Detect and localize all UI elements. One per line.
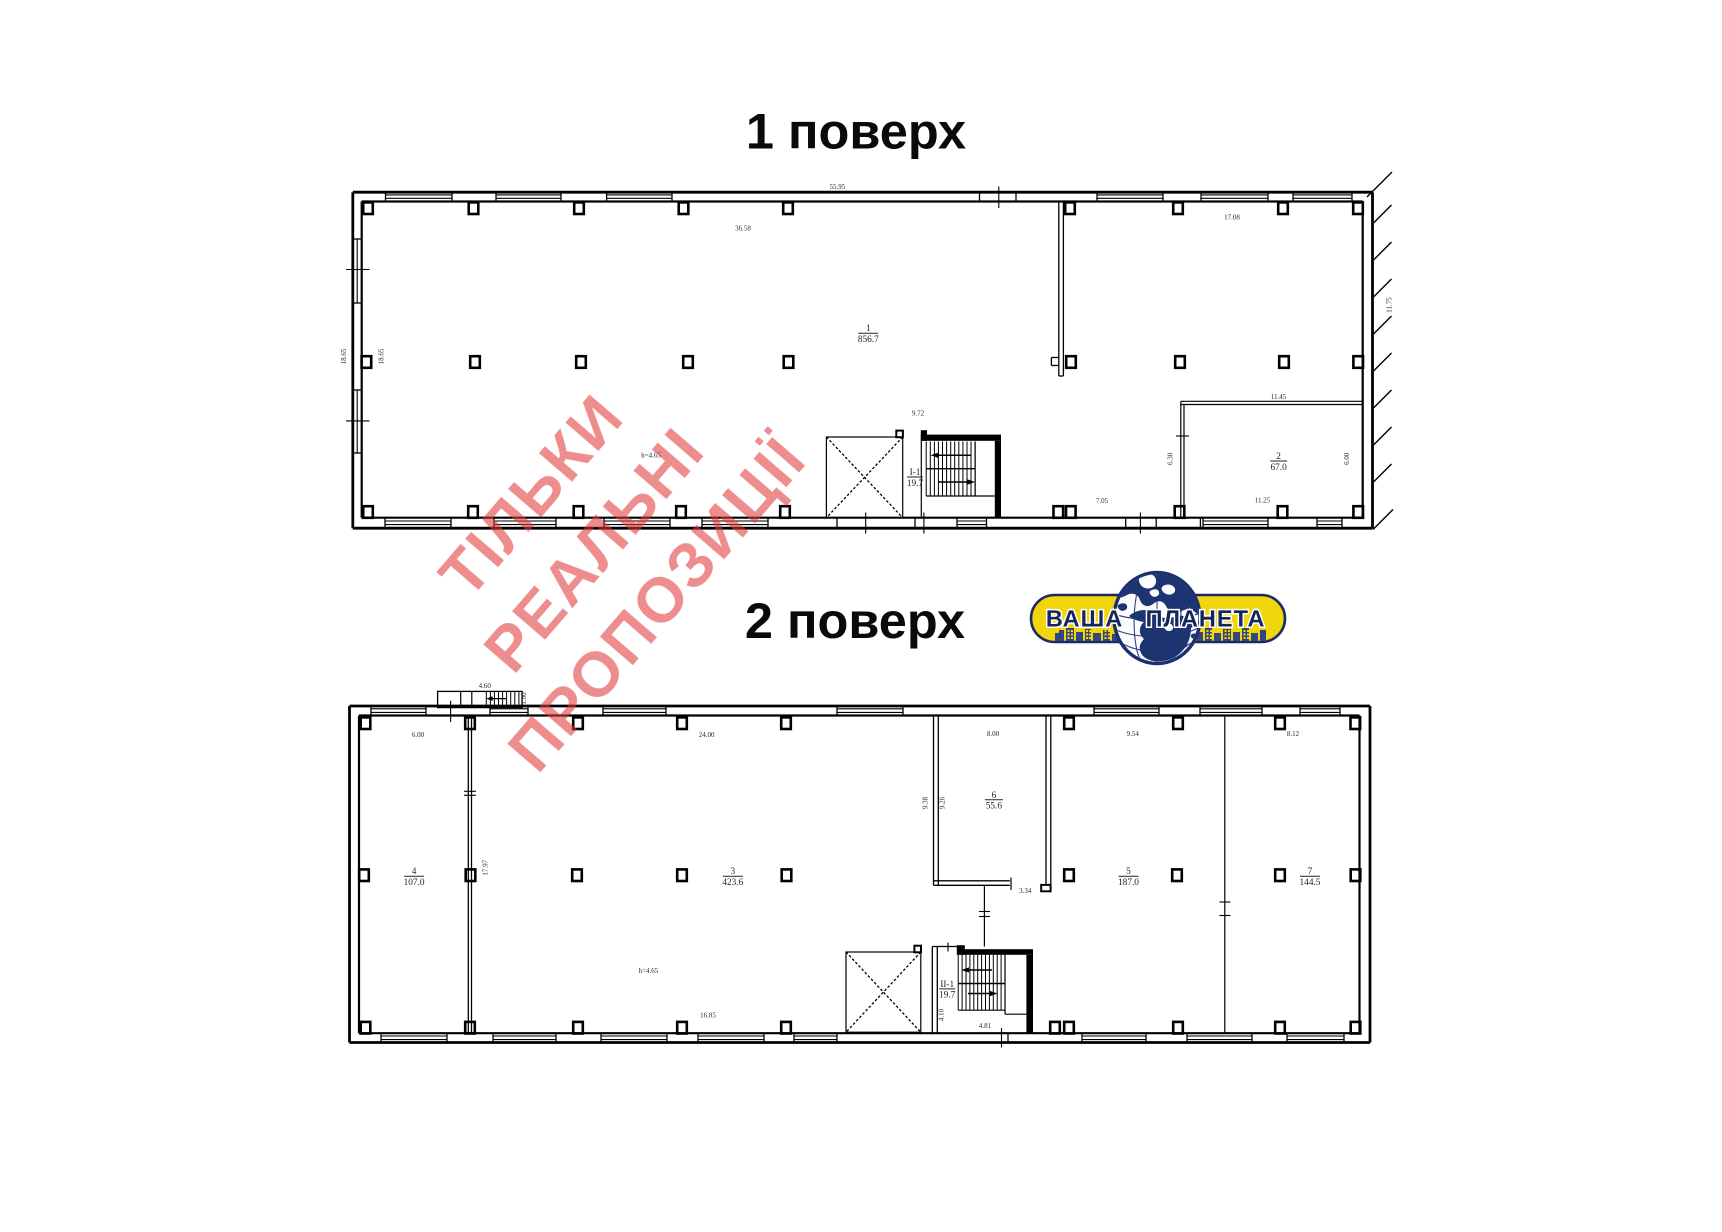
svg-text:2 поверх: 2 поверх xyxy=(745,592,965,649)
svg-text:144.5: 144.5 xyxy=(1300,878,1321,888)
svg-text:ВАША: ВАША xyxy=(1046,606,1123,632)
svg-text:11.45: 11.45 xyxy=(1271,393,1287,401)
svg-text:6.00: 6.00 xyxy=(1343,452,1351,465)
svg-text:7.05: 7.05 xyxy=(1096,497,1109,505)
svg-text:9.26: 9.26 xyxy=(938,796,946,809)
svg-text:11.75: 11.75 xyxy=(1386,297,1394,313)
svg-text:6.30: 6.30 xyxy=(1167,452,1175,465)
svg-text:11.25: 11.25 xyxy=(1255,497,1271,505)
svg-text:3.34: 3.34 xyxy=(1019,887,1032,895)
svg-text:67.0: 67.0 xyxy=(1270,463,1287,473)
svg-text:55.95: 55.95 xyxy=(830,183,846,191)
svg-text:1 поверх: 1 поверх xyxy=(746,103,966,160)
svg-text:ПЛАНЕТА: ПЛАНЕТА xyxy=(1146,606,1266,632)
svg-text:8.00: 8.00 xyxy=(987,730,1000,738)
svg-text:423.6: 423.6 xyxy=(722,878,743,888)
svg-text:9.72: 9.72 xyxy=(912,409,925,417)
svg-text:24.00: 24.00 xyxy=(699,731,715,739)
svg-text:19.7: 19.7 xyxy=(939,991,956,1001)
svg-text:4.81: 4.81 xyxy=(979,1022,992,1030)
svg-text:8.12: 8.12 xyxy=(1287,730,1300,738)
svg-text:16.85: 16.85 xyxy=(700,1011,716,1019)
svg-text:187.0: 187.0 xyxy=(1118,878,1139,888)
svg-text:h=4.65: h=4.65 xyxy=(639,967,659,975)
svg-text:19.7: 19.7 xyxy=(907,479,924,489)
svg-text:18.65: 18.65 xyxy=(377,348,385,364)
svg-text:55.6: 55.6 xyxy=(986,802,1003,812)
svg-text:9.38: 9.38 xyxy=(921,796,929,809)
svg-text:17.08: 17.08 xyxy=(1224,213,1240,221)
svg-text:9.54: 9.54 xyxy=(1127,730,1140,738)
svg-text:4.10: 4.10 xyxy=(938,1008,946,1021)
svg-text:18.65: 18.65 xyxy=(340,348,348,364)
